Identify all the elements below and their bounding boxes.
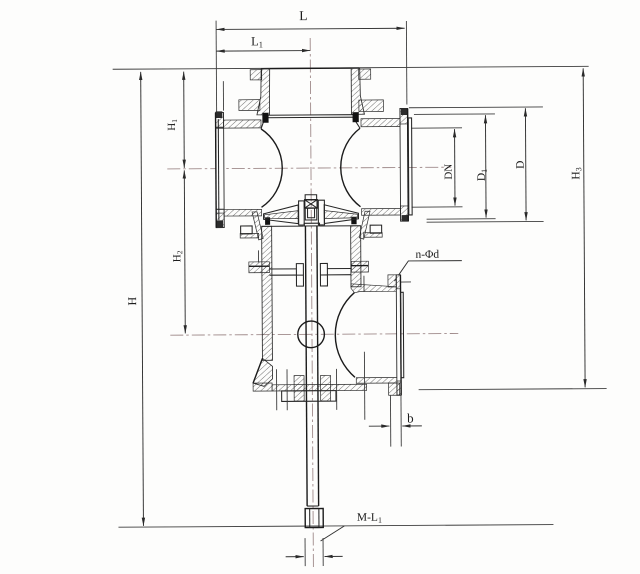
svg-text:D: D xyxy=(515,161,527,169)
svg-text:L: L xyxy=(299,8,307,23)
svg-text:n-Φd: n-Φd xyxy=(415,249,439,261)
svg-text:H1: H1 xyxy=(166,119,179,131)
svg-text:b: b xyxy=(407,410,414,425)
svg-text:DN: DN xyxy=(443,164,455,180)
svg-text:H2: H2 xyxy=(171,250,184,262)
svg-text:H: H xyxy=(125,296,139,305)
svg-text:H3: H3 xyxy=(570,167,583,179)
svg-text:M-L1: M-L1 xyxy=(357,512,382,525)
svg-text:D1: D1 xyxy=(476,169,489,181)
svg-text:L1: L1 xyxy=(251,34,263,49)
